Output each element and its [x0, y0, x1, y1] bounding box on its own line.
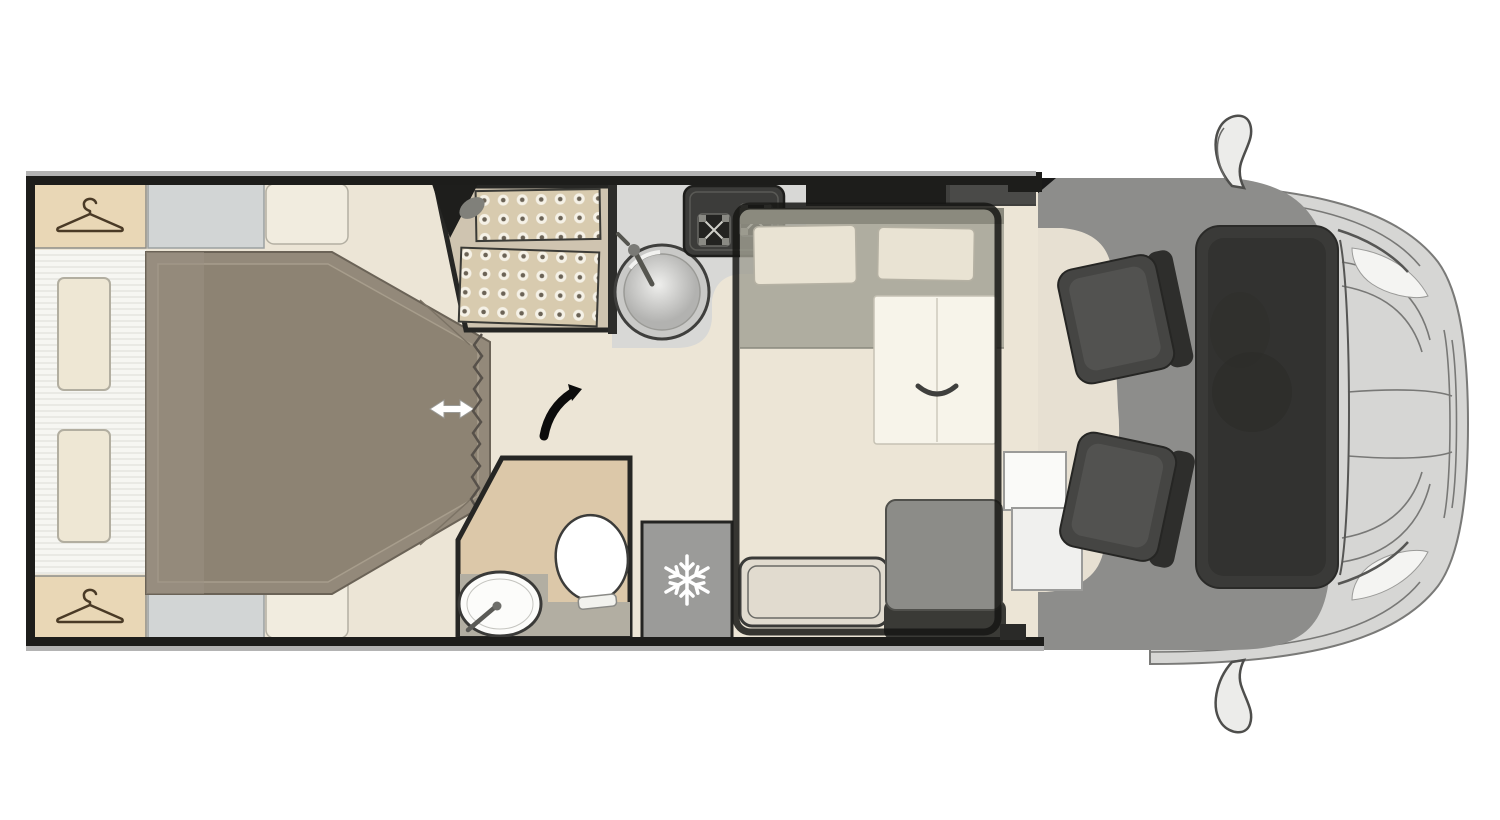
headrest [754, 225, 857, 285]
headrest [878, 227, 975, 281]
burner-icon [698, 214, 730, 246]
floorplan-page [0, 0, 1500, 820]
shower-kitchen-divider-wall [608, 184, 617, 334]
shower-tile-bench [459, 248, 599, 327]
shower-tile-bench [476, 189, 601, 241]
floorplan-svg [0, 0, 1500, 820]
travel-seat [884, 500, 1006, 640]
folding-table [874, 296, 996, 444]
wall-bottom [26, 637, 1044, 646]
steering-wheel [1212, 352, 1292, 432]
wardrobe-top [34, 184, 146, 248]
bench-back [740, 208, 1004, 224]
fridge-freezer [642, 522, 732, 640]
cabinet-top-cream [266, 184, 348, 244]
pillow [58, 278, 110, 390]
wardrobe-bottom [34, 576, 146, 638]
wall-rear [26, 176, 35, 646]
overhead-locker-dark [806, 184, 946, 204]
wall-top [26, 176, 1036, 185]
washroom-sink [459, 572, 541, 636]
bench-frame [740, 558, 888, 626]
cabinet-top-gray [148, 184, 264, 248]
pillow [58, 430, 110, 542]
